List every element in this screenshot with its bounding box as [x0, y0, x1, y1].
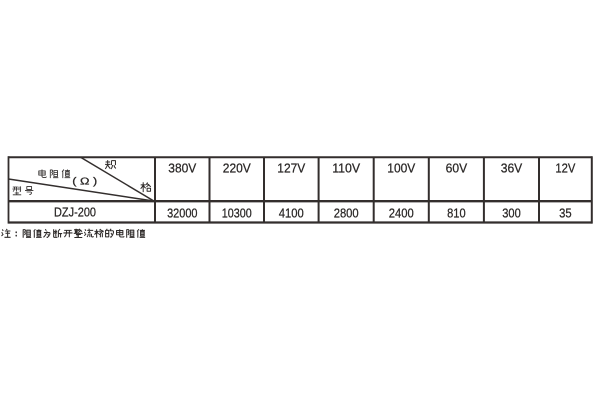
svg-text:12V: 12V — [555, 161, 576, 175]
svg-text:36V: 36V — [501, 161, 523, 175]
svg-text:2400: 2400 — [389, 206, 414, 220]
svg-text:60V: 60V — [446, 161, 468, 175]
svg-text:220V: 220V — [223, 161, 252, 175]
svg-text:DZJ-200: DZJ-200 — [54, 206, 96, 220]
svg-text:35: 35 — [559, 206, 572, 220]
svg-text:110V: 110V — [332, 161, 361, 175]
svg-text:2800: 2800 — [334, 206, 359, 220]
svg-text:810: 810 — [447, 206, 466, 220]
svg-text:( Ω ): ( Ω ) — [72, 177, 97, 188]
svg-text:32000: 32000 — [167, 206, 197, 220]
svg-text:127V: 127V — [277, 161, 306, 175]
svg-text:4100: 4100 — [279, 206, 304, 220]
svg-text:100V: 100V — [387, 161, 416, 175]
svg-text:380V: 380V — [168, 161, 197, 175]
svg-text:10300: 10300 — [222, 206, 252, 220]
svg-text:300: 300 — [502, 206, 521, 220]
